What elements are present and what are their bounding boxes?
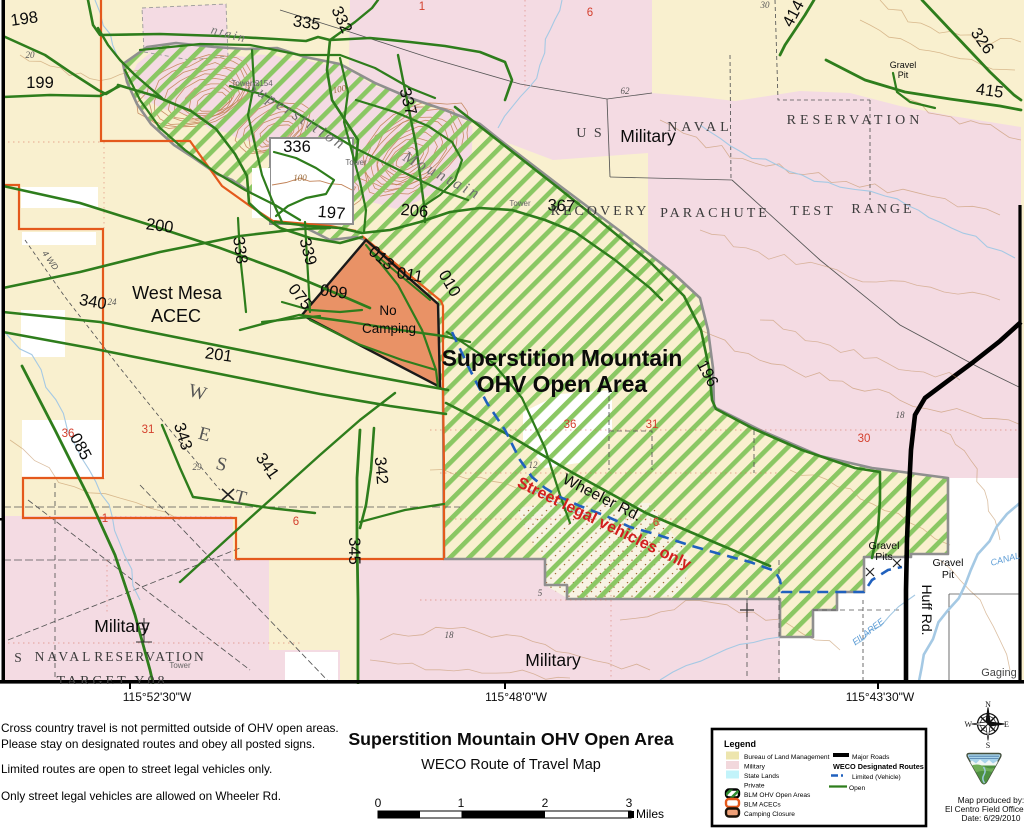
- svg-text:Military: Military: [744, 764, 766, 771]
- svg-text:Huff Rd.: Huff Rd.: [919, 584, 935, 635]
- svg-text:200: 200: [145, 215, 175, 237]
- svg-text:Camping: Camping: [362, 321, 416, 336]
- svg-text:6: 6: [653, 517, 659, 529]
- svg-text:Please stay on designated rout: Please stay on designated routes and obe…: [1, 737, 315, 751]
- svg-text:NAVAL: NAVAL: [35, 649, 94, 664]
- svg-text:415: 415: [975, 80, 1005, 102]
- svg-text:100: 100: [293, 173, 307, 183]
- svg-text:201: 201: [204, 344, 234, 366]
- svg-text:345: 345: [345, 537, 363, 565]
- svg-text:PARACHUTE: PARACHUTE: [660, 206, 770, 221]
- svg-text:338: 338: [229, 235, 251, 265]
- svg-text:WECO Route of Travel Map: WECO Route of Travel Map: [421, 757, 601, 773]
- svg-text:E: E: [1004, 720, 1009, 729]
- svg-text:RANGE: RANGE: [851, 202, 914, 217]
- svg-text:U S: U S: [576, 126, 603, 141]
- svg-text:Private: Private: [744, 783, 765, 790]
- svg-text:6: 6: [293, 516, 299, 528]
- svg-text:Pits: Pits: [875, 551, 893, 563]
- svg-text:RESERVATION: RESERVATION: [787, 113, 924, 128]
- svg-text:36: 36: [564, 419, 577, 431]
- svg-text:115°52'30"W: 115°52'30"W: [123, 690, 192, 704]
- svg-text:335: 335: [292, 12, 322, 34]
- svg-text:State Lands: State Lands: [744, 773, 780, 780]
- svg-text:Gravel: Gravel: [890, 60, 917, 70]
- svg-text:No: No: [379, 303, 396, 318]
- svg-text:12: 12: [529, 460, 539, 470]
- svg-text:Legend: Legend: [724, 739, 756, 749]
- svg-text:30: 30: [858, 433, 871, 445]
- svg-text:Tower 2154: Tower 2154: [231, 79, 273, 88]
- svg-text:Tower: Tower: [169, 661, 191, 670]
- svg-text:S: S: [14, 650, 22, 665]
- svg-text:18: 18: [896, 410, 906, 420]
- svg-text:Limited routes are open to str: Limited routes are open to street legal …: [1, 762, 272, 776]
- svg-text:Only street legal vehicles are: Only street legal vehicles are allowed o…: [1, 789, 281, 803]
- svg-text:24: 24: [108, 297, 118, 307]
- svg-text:Tower: Tower: [509, 199, 531, 208]
- svg-text:0: 0: [375, 796, 382, 810]
- svg-text:WECO Designated Routes: WECO Designated Routes: [833, 762, 924, 771]
- svg-text:Tower: Tower: [345, 158, 367, 167]
- svg-text:TEST: TEST: [790, 204, 835, 219]
- svg-text:W: W: [964, 720, 972, 729]
- svg-text:Superstition Mountain OHV Open: Superstition Mountain OHV Open Area: [348, 729, 673, 749]
- svg-text:NAVAL: NAVAL: [667, 120, 732, 135]
- svg-text:31: 31: [646, 419, 659, 431]
- svg-text:1: 1: [458, 796, 465, 810]
- svg-text:Military: Military: [94, 616, 150, 636]
- svg-text:Date: 6/29/2010: Date: 6/29/2010: [961, 813, 1020, 823]
- svg-text:115°43'30"W: 115°43'30"W: [846, 690, 915, 704]
- svg-text:2: 2: [542, 796, 549, 810]
- svg-text:Military: Military: [620, 126, 676, 146]
- svg-text:30: 30: [760, 0, 771, 10]
- svg-text:115°48'0"W: 115°48'0"W: [485, 690, 548, 704]
- svg-text:Gaging: Gaging: [981, 667, 1016, 679]
- svg-text:199: 199: [26, 74, 54, 92]
- svg-text:1: 1: [419, 1, 425, 13]
- svg-text:342: 342: [371, 456, 391, 485]
- svg-text:BLM ACECs: BLM ACECs: [744, 802, 781, 809]
- svg-text:BLM OHV Open Areas: BLM OHV Open Areas: [744, 792, 811, 799]
- svg-text:198: 198: [9, 8, 39, 30]
- svg-text:20: 20: [26, 50, 36, 60]
- svg-text:5: 5: [538, 588, 543, 598]
- svg-text:Miles: Miles: [636, 807, 664, 821]
- svg-text:N: N: [985, 700, 991, 709]
- svg-text:6: 6: [587, 7, 593, 19]
- svg-text:Superstition Mountain: Superstition Mountain: [442, 345, 683, 371]
- svg-text:3: 3: [626, 796, 633, 810]
- svg-text:197: 197: [317, 203, 346, 223]
- svg-text:Limited (Vehicle): Limited (Vehicle): [852, 774, 901, 781]
- svg-text:Military: Military: [525, 650, 581, 670]
- svg-text:336: 336: [283, 138, 311, 156]
- svg-text:Open: Open: [849, 785, 865, 792]
- svg-text:Camping Closure: Camping Closure: [744, 811, 795, 818]
- svg-text:31: 31: [142, 424, 155, 436]
- svg-text:Pit: Pit: [942, 569, 954, 581]
- svg-text:ACEC: ACEC: [151, 306, 201, 326]
- svg-text:Gravel: Gravel: [933, 557, 964, 569]
- svg-text:18: 18: [445, 630, 455, 640]
- svg-text:Bureau of Land Management: Bureau of Land Management: [744, 754, 830, 761]
- svg-text:OHV Open Area: OHV Open Area: [477, 371, 647, 397]
- svg-text:Major Roads: Major Roads: [852, 754, 890, 761]
- svg-text:S: S: [986, 741, 990, 750]
- svg-text:RECOVERY: RECOVERY: [551, 204, 650, 219]
- svg-text:Cross country travel is not pe: Cross country travel is not permitted ou…: [1, 721, 339, 735]
- svg-text:36: 36: [62, 428, 75, 440]
- svg-text:29: 29: [193, 462, 203, 472]
- svg-text:009: 009: [319, 281, 349, 303]
- svg-text:206: 206: [400, 201, 429, 221]
- svg-text:Pit: Pit: [898, 70, 909, 80]
- svg-text:62: 62: [621, 86, 631, 96]
- svg-text:West Mesa: West Mesa: [132, 283, 223, 303]
- svg-text:1: 1: [102, 513, 108, 525]
